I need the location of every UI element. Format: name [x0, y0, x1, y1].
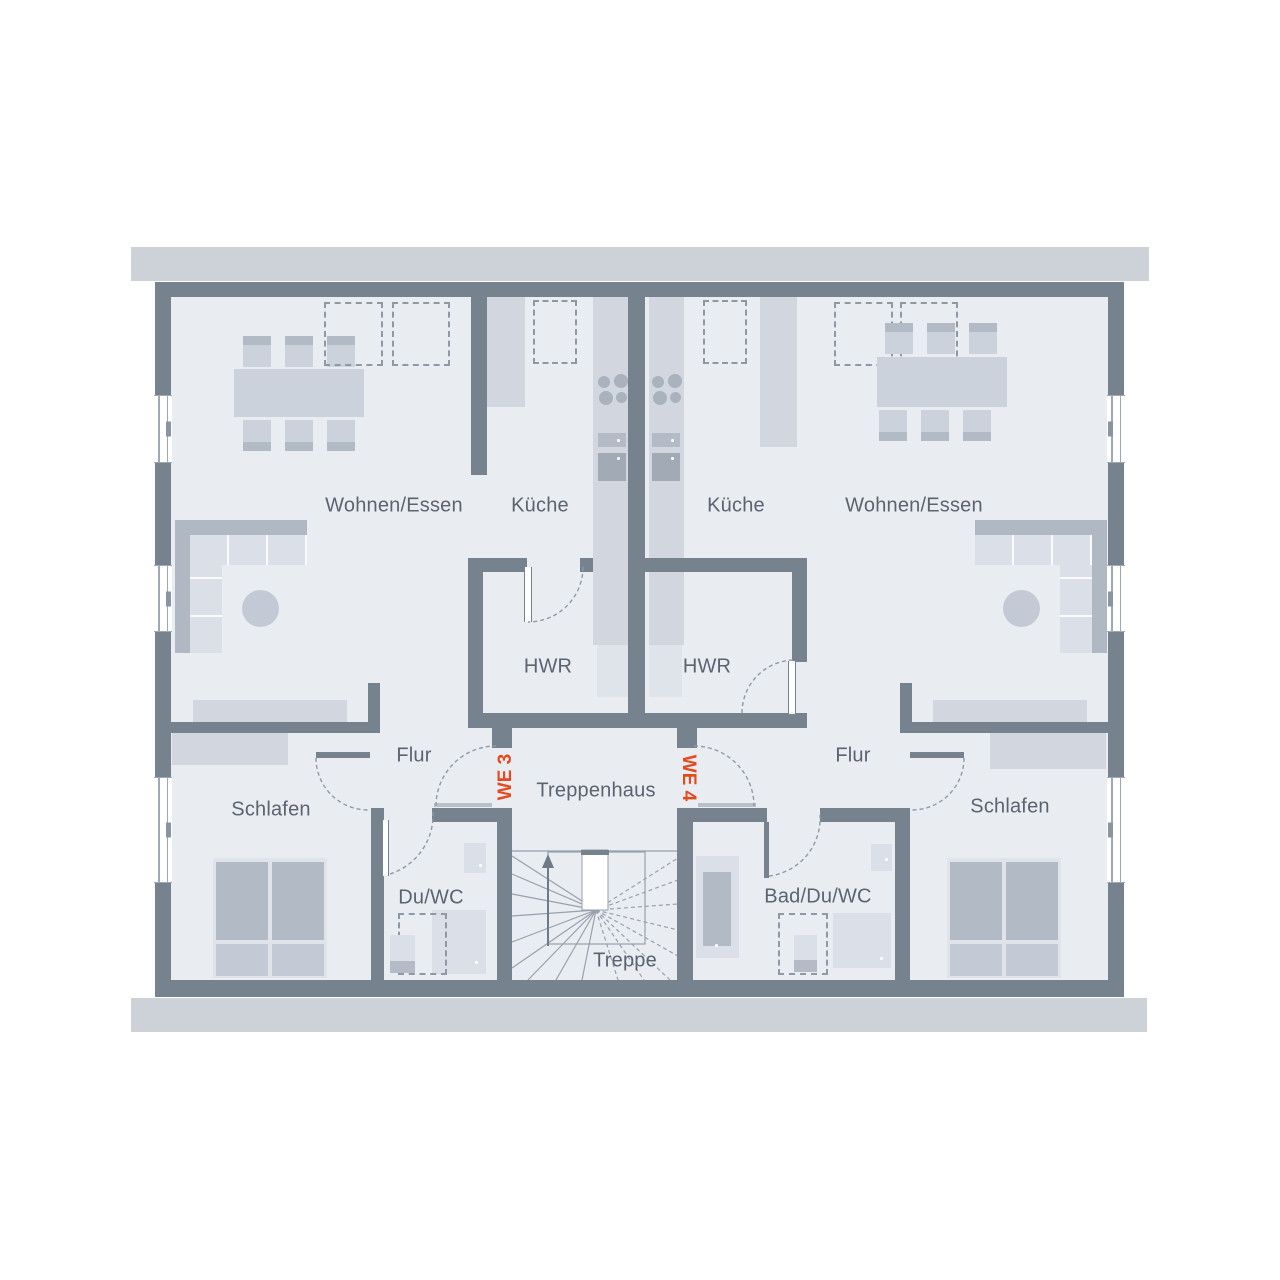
- door-swing-arc: [316, 758, 368, 810]
- room-label-living-right: Wohnen/Essen: [845, 495, 983, 518]
- door-swing-arcs: [0, 0, 1280, 1280]
- room-label-hall-right: Flur: [835, 745, 870, 768]
- door-swing-arc: [769, 815, 820, 876]
- unit-label-we4: WE 4: [677, 755, 699, 801]
- room-label-kitchen-left: Küche: [511, 495, 569, 518]
- door-swing-arc: [742, 660, 795, 713]
- floor-plan: Wohnen/Essen Küche Küche Wohnen/Essen HW…: [0, 0, 1280, 1280]
- door-swing-arc: [436, 746, 496, 806]
- room-label-hwr-right: HWR: [683, 656, 731, 679]
- door-swing-arc: [912, 758, 964, 810]
- room-label-bedroom-right: Schlafen: [970, 796, 1049, 819]
- room-label-bath-left: Du/WC: [398, 887, 463, 910]
- room-label-kitchen-right: Küche: [707, 495, 765, 518]
- room-label-hwr-left: HWR: [524, 656, 572, 679]
- room-label-living-left: Wohnen/Essen: [325, 495, 463, 518]
- door-swing-arc: [694, 746, 754, 806]
- room-label-hall-left: Flur: [396, 745, 431, 768]
- room-label-bath-right: Bad/Du/WC: [764, 886, 871, 909]
- room-label-stairwell: Treppenhaus: [536, 780, 655, 803]
- unit-label-we3: WE 3: [495, 754, 517, 800]
- door-swing-arc: [390, 812, 433, 874]
- room-label-bedroom-left: Schlafen: [231, 799, 310, 822]
- door-swing-arc: [528, 567, 583, 622]
- room-label-stairs: Treppe: [593, 950, 657, 973]
